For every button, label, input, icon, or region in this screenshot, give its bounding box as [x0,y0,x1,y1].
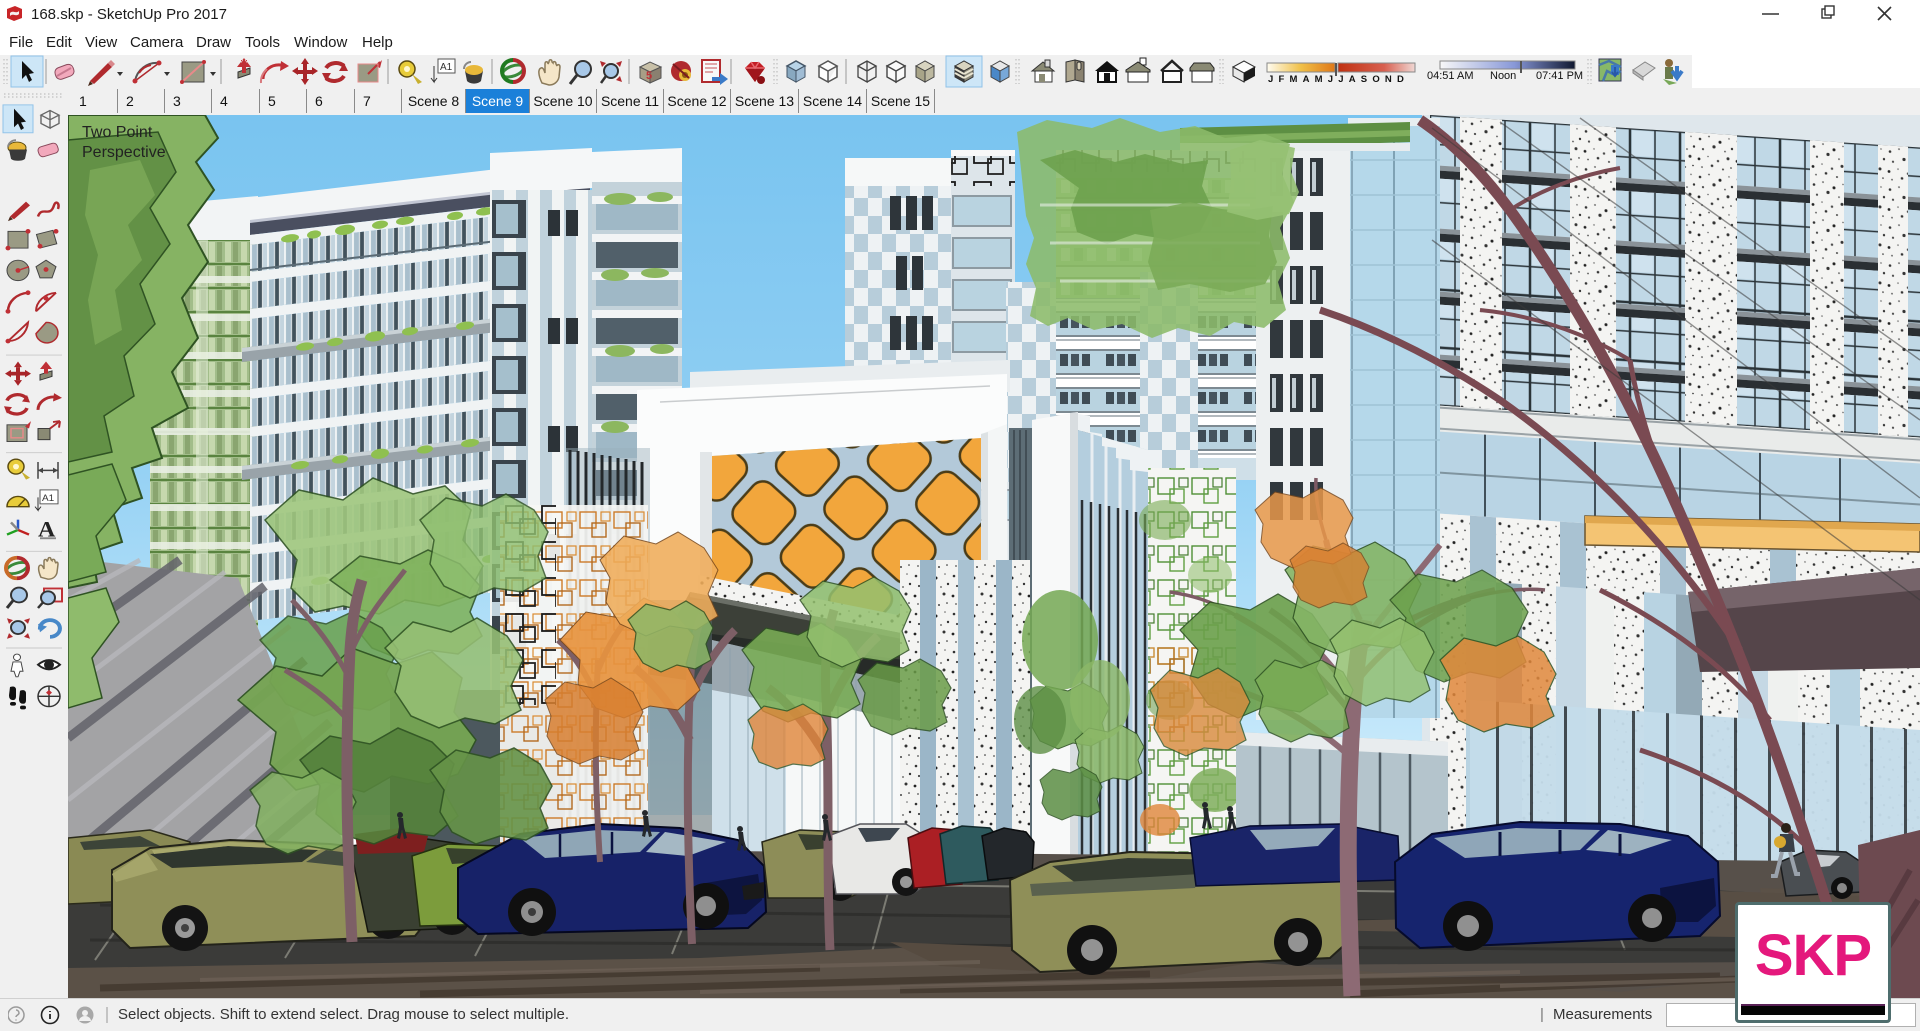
svg-text:A1: A1 [440,62,453,73]
svg-text:5: 5 [646,70,652,82]
svg-text:07:41 PM: 07:41 PM [1536,70,1583,82]
svg-text:04:51 AM: 04:51 AM [1427,70,1473,82]
svg-text:JFMAMJJASOND: JFMAMJJASOND [1268,74,1409,85]
svg-text:Perspective: Perspective [82,144,166,161]
svg-text:Two Point: Two Point [82,124,153,141]
svg-text:Noon: Noon [1490,70,1516,82]
svg-text:A1: A1 [42,493,54,504]
